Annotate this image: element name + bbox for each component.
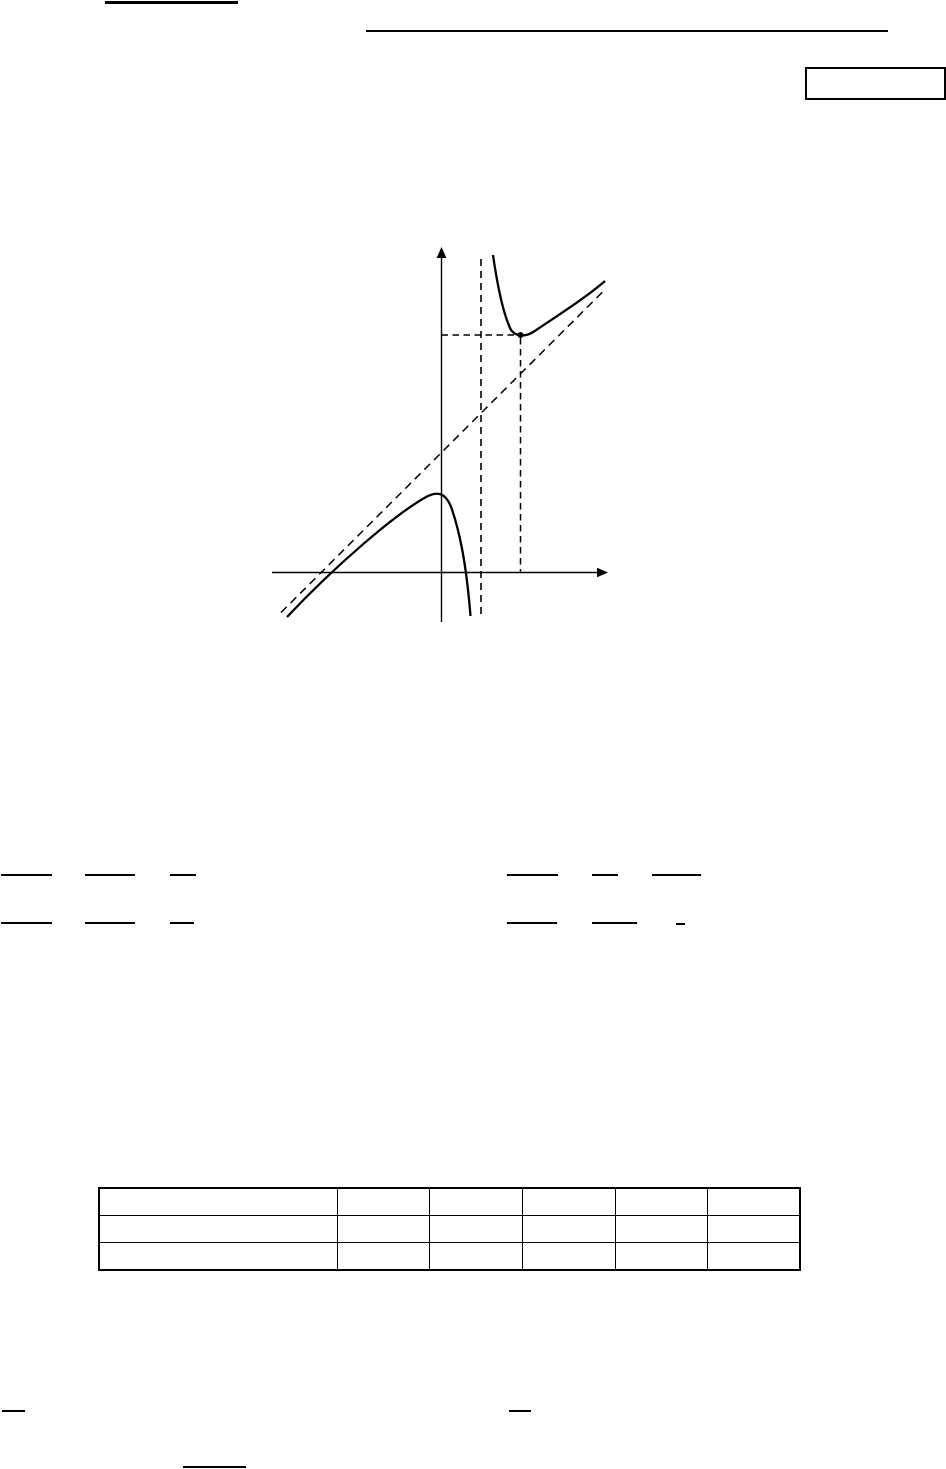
fraction-bar bbox=[676, 923, 685, 925]
fraction-bar bbox=[85, 874, 135, 876]
fraction-bar bbox=[85, 922, 135, 924]
fraction-bar bbox=[592, 922, 637, 924]
table-cell bbox=[615, 1216, 707, 1243]
table-row bbox=[99, 1216, 800, 1243]
table-cell bbox=[429, 1243, 522, 1271]
fraction-bar bbox=[592, 874, 618, 876]
fraction-bar bbox=[170, 922, 194, 924]
table-cell bbox=[429, 1188, 522, 1216]
local-minimum-point bbox=[518, 332, 524, 338]
table-cell bbox=[707, 1216, 800, 1243]
table-cell bbox=[522, 1216, 615, 1243]
x-axis-arrowhead bbox=[597, 568, 608, 577]
table-cell bbox=[99, 1243, 337, 1271]
document-page bbox=[0, 0, 946, 1469]
answer-box bbox=[805, 67, 946, 100]
fraction-bar bbox=[507, 874, 558, 876]
table-cell bbox=[429, 1216, 522, 1243]
table-cell bbox=[337, 1243, 429, 1271]
table-cell bbox=[707, 1188, 800, 1216]
curve-right-branch bbox=[493, 255, 605, 335]
table-cell bbox=[615, 1243, 707, 1271]
fraction-bar bbox=[170, 874, 196, 876]
answer-table bbox=[98, 1187, 801, 1271]
table-cell bbox=[522, 1243, 615, 1271]
y-axis-arrowhead bbox=[437, 247, 447, 258]
header-rule bbox=[366, 30, 888, 32]
fraction-bar bbox=[652, 874, 701, 876]
table-cell bbox=[337, 1216, 429, 1243]
title-underline bbox=[105, 1, 238, 4]
table-cell bbox=[707, 1243, 800, 1271]
table-cell bbox=[615, 1188, 707, 1216]
table-cell bbox=[522, 1188, 615, 1216]
table-cell bbox=[99, 1188, 337, 1216]
fraction-bar bbox=[1, 874, 52, 876]
curve-left-branch bbox=[287, 494, 471, 617]
oblique-asymptote-dashed bbox=[281, 292, 603, 613]
fraction-bar bbox=[507, 922, 557, 924]
table-cell bbox=[337, 1188, 429, 1216]
fraction-bar bbox=[1, 922, 52, 924]
table-row bbox=[99, 1243, 800, 1271]
footer-bar bbox=[2, 1410, 25, 1412]
footer-bar bbox=[509, 1410, 531, 1412]
table-cell bbox=[99, 1216, 337, 1243]
table-row bbox=[99, 1188, 800, 1216]
footer-bar bbox=[183, 1466, 246, 1468]
